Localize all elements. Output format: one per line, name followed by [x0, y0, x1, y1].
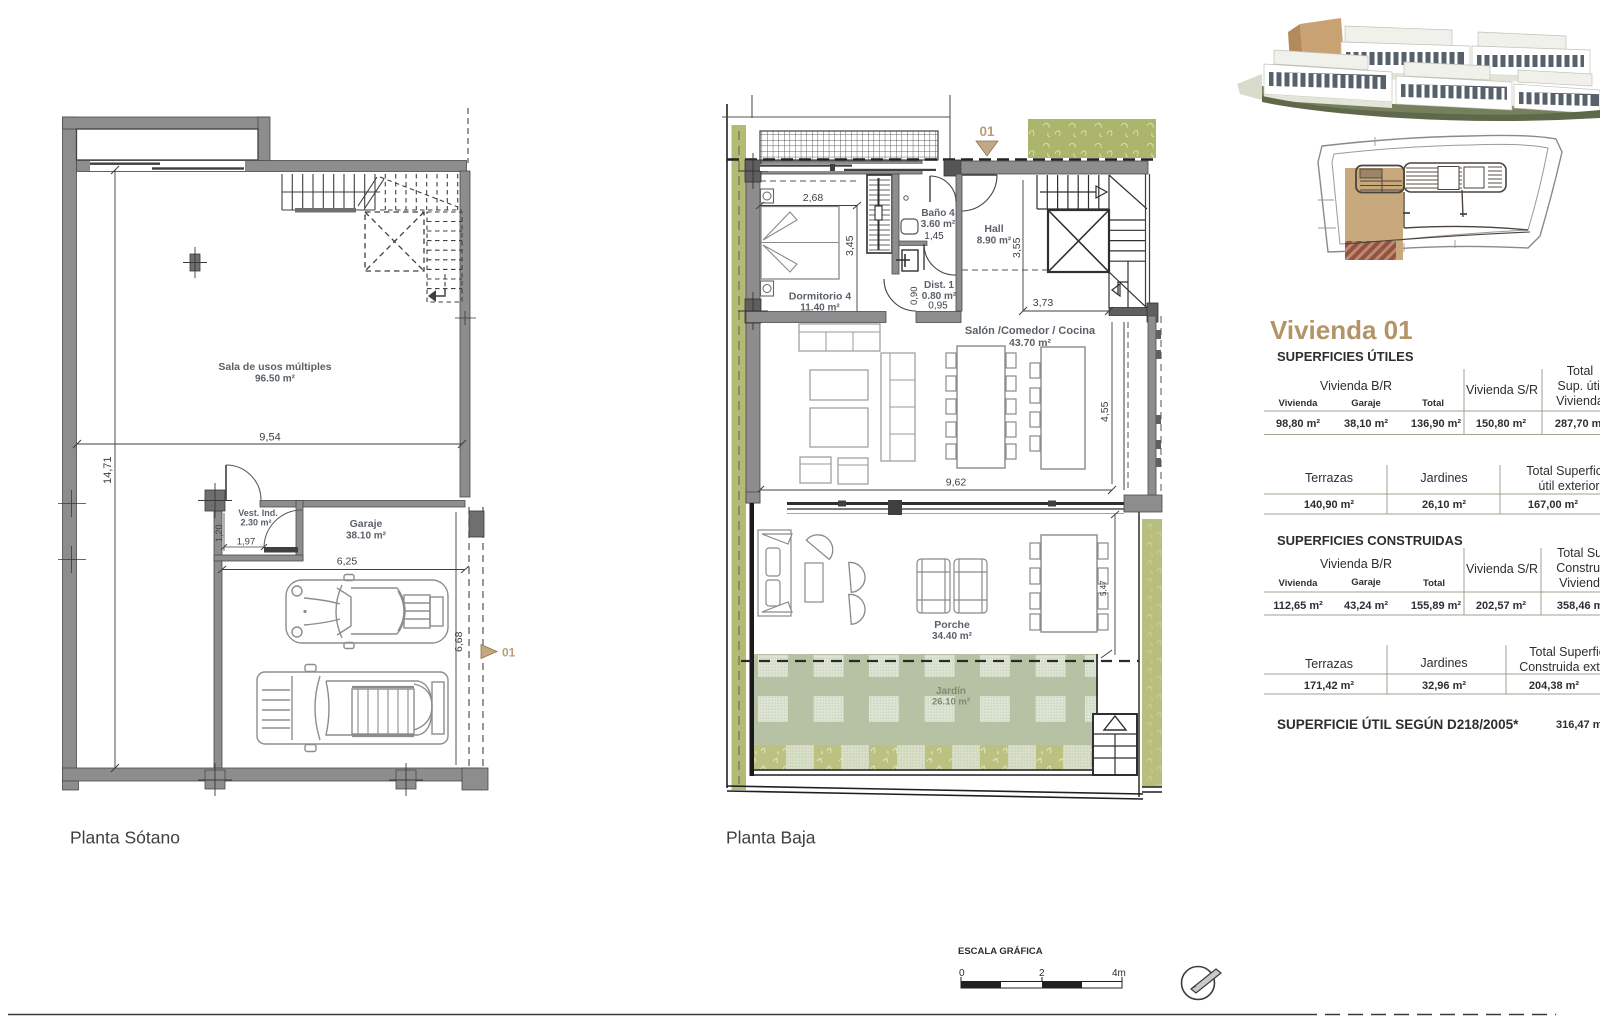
svg-text:2.30 m²: 2.30 m²: [240, 518, 271, 528]
svg-text:96.50 m²: 96.50 m²: [255, 374, 296, 385]
svg-text:Vivienda 01: Vivienda 01: [1270, 315, 1413, 345]
svg-text:Vivienda S/R: Vivienda S/R: [1466, 562, 1538, 576]
svg-text:140,90 m²: 140,90 m²: [1304, 499, 1354, 511]
svg-text:2: 2: [1039, 968, 1045, 979]
svg-text:6,25: 6,25: [337, 556, 358, 568]
svg-text:SUPERFICIE ÚTIL SEGÚN D218/200: SUPERFICIE ÚTIL SEGÚN D218/2005*: [1277, 717, 1519, 732]
svg-text:171,42 m²: 171,42 m²: [1304, 680, 1354, 692]
svg-text:4m: 4m: [1112, 968, 1126, 979]
svg-text:Construida exterior: Construida exterior: [1519, 660, 1600, 674]
svg-text:8.90 m²: 8.90 m²: [977, 236, 1012, 247]
svg-text:ESCALA GRÁFICA: ESCALA GRÁFICA: [958, 946, 1043, 957]
svg-text:316,47 m²: 316,47 m²: [1556, 719, 1600, 731]
svg-text:Garaje: Garaje: [350, 518, 383, 530]
svg-text:Dist. 1: Dist. 1: [924, 280, 954, 291]
svg-text:Total: Total: [1423, 578, 1445, 589]
svg-text:1,97: 1,97: [237, 537, 256, 548]
svg-text:01: 01: [502, 646, 516, 660]
svg-text:Porche: Porche: [934, 619, 970, 631]
svg-text:Jardines: Jardines: [1420, 656, 1467, 670]
svg-text:167,00 m²: 167,00 m²: [1528, 499, 1578, 511]
svg-text:4,55: 4,55: [1099, 401, 1111, 422]
svg-text:358,46 m²: 358,46 m²: [1557, 600, 1600, 612]
svg-text:Terrazas: Terrazas: [1305, 657, 1353, 671]
svg-text:32,96 m²: 32,96 m²: [1422, 680, 1466, 692]
svg-text:0: 0: [959, 968, 965, 979]
svg-text:150,80 m²: 150,80 m²: [1476, 418, 1526, 430]
svg-text:38,10 m²: 38,10 m²: [1344, 418, 1388, 430]
svg-text:Total: Total: [1567, 364, 1593, 378]
svg-text:Total Sup: Total Sup: [1557, 546, 1600, 560]
svg-text:Total Superficie: Total Superficie: [1529, 645, 1600, 659]
svg-text:Vivienda B/R: Vivienda B/R: [1320, 557, 1392, 571]
svg-text:Total: Total: [1422, 398, 1444, 409]
svg-text:Jardín: Jardín: [936, 686, 966, 697]
svg-text:Construid: Construid: [1556, 561, 1600, 575]
svg-text:Salón /Comedor / Cocina: Salón /Comedor / Cocina: [965, 325, 1096, 337]
svg-text:01: 01: [979, 124, 995, 139]
svg-text:Vivienda: Vivienda: [1559, 576, 1600, 590]
svg-text:Jardines: Jardines: [1420, 471, 1467, 485]
svg-text:1,45: 1,45: [924, 231, 944, 242]
svg-text:Garaje: Garaje: [1351, 577, 1381, 588]
svg-text:14,71: 14,71: [102, 456, 114, 484]
svg-text:Terrazas: Terrazas: [1305, 471, 1353, 485]
svg-text:9,62: 9,62: [946, 477, 967, 489]
svg-text:1,20: 1,20: [214, 524, 224, 542]
svg-text:34.40 m²: 34.40 m²: [932, 631, 973, 642]
svg-text:Planta Sótano: Planta Sótano: [70, 828, 180, 848]
svg-text:112,65 m²: 112,65 m²: [1273, 600, 1323, 612]
svg-text:204,38 m²: 204,38 m²: [1529, 680, 1579, 692]
svg-text:9,54: 9,54: [259, 432, 280, 444]
svg-text:Dormitorio 4: Dormitorio 4: [789, 291, 852, 303]
svg-text:Vest. Ind.: Vest. Ind.: [238, 508, 278, 518]
svg-text:38.10 m²: 38.10 m²: [346, 531, 387, 542]
svg-text:Total Superficie: Total Superficie: [1526, 464, 1600, 478]
svg-text:útil exterior: útil exterior: [1538, 479, 1599, 493]
svg-text:43,24 m²: 43,24 m²: [1344, 600, 1388, 612]
svg-text:26,10 m²: 26,10 m²: [1422, 499, 1466, 511]
svg-text:Baño 4: Baño 4: [921, 208, 955, 219]
svg-text:Vivienda: Vivienda: [1556, 394, 1600, 408]
svg-text:3.60 m²: 3.60 m²: [921, 219, 956, 230]
svg-text:Vivienda: Vivienda: [1279, 578, 1319, 589]
svg-text:287,70 m²: 287,70 m²: [1555, 418, 1600, 430]
svg-text:Vivienda: Vivienda: [1279, 398, 1319, 409]
svg-text:5,47: 5,47: [1099, 580, 1108, 596]
svg-text:6,68: 6,68: [453, 631, 465, 652]
svg-text:SUPERFICIES ÚTILES: SUPERFICIES ÚTILES: [1277, 349, 1414, 364]
svg-text:Garaje: Garaje: [1351, 398, 1381, 409]
svg-text:98,80 m²: 98,80 m²: [1276, 418, 1320, 430]
svg-text:3,45: 3,45: [844, 235, 856, 256]
svg-text:Hall: Hall: [984, 223, 1003, 235]
svg-text:136,90 m²: 136,90 m²: [1411, 418, 1461, 430]
svg-text:Sup. útil: Sup. útil: [1557, 379, 1600, 393]
svg-text:0,90: 0,90: [909, 287, 920, 306]
svg-text:0,95: 0,95: [928, 301, 948, 312]
svg-text:Vivienda B/R: Vivienda B/R: [1320, 379, 1392, 393]
svg-text:3,55: 3,55: [1011, 237, 1023, 258]
svg-text:Planta Baja: Planta Baja: [726, 828, 816, 848]
svg-text:26.10 m²: 26.10 m²: [932, 697, 970, 708]
svg-text:202,57 m²: 202,57 m²: [1476, 600, 1526, 612]
svg-text:3,73: 3,73: [1033, 297, 1054, 309]
svg-text:Vivienda S/R: Vivienda S/R: [1466, 383, 1538, 397]
svg-text:SUPERFICIES CONSTRUIDAS: SUPERFICIES CONSTRUIDAS: [1277, 533, 1463, 548]
svg-text:Sala de usos múltiples: Sala de usos múltiples: [218, 361, 331, 373]
svg-text:155,89 m²: 155,89 m²: [1411, 600, 1461, 612]
svg-text:2,68: 2,68: [803, 192, 824, 204]
